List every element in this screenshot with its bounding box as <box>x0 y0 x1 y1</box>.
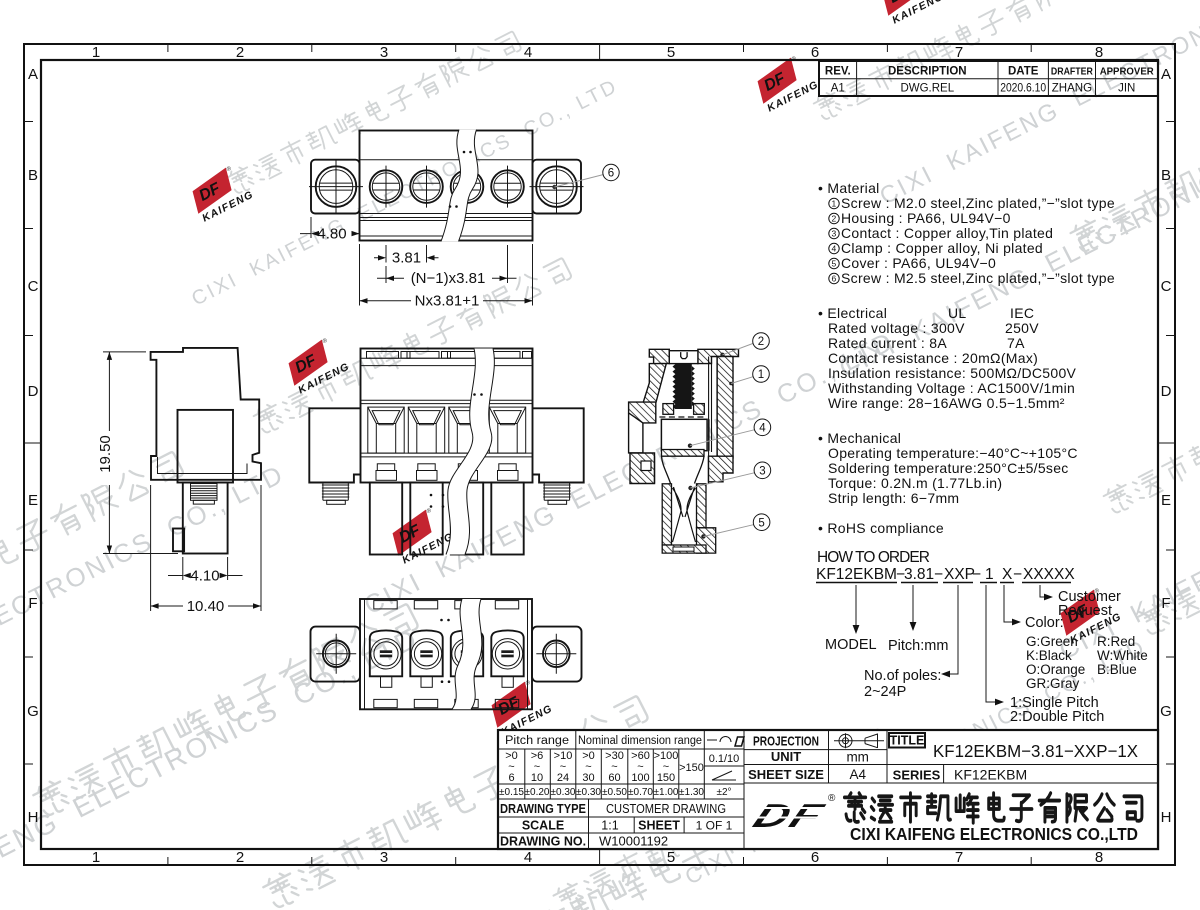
svg-text:6: 6 <box>831 274 836 284</box>
svg-text:Contact resistance : 20mΩ(Max): Contact resistance : 20mΩ(Max) <box>828 350 1038 366</box>
svg-text:XXXXX: XXXXX <box>1023 566 1075 583</box>
svg-text:MODEL: MODEL <box>825 637 877 653</box>
svg-text:A4: A4 <box>849 767 866 782</box>
svg-text:±0.30: ±0.30 <box>576 787 601 798</box>
svg-text:1: 1 <box>92 44 100 61</box>
svg-text:E: E <box>1161 492 1171 509</box>
svg-text:Cover : PA66, UL94V−0: Cover : PA66, UL94V−0 <box>841 255 996 271</box>
svg-text:F: F <box>28 595 37 612</box>
svg-text:DRAWING TYPE: DRAWING TYPE <box>500 802 586 816</box>
svg-text:UNIT: UNIT <box>771 749 801 764</box>
svg-text:3: 3 <box>380 44 388 61</box>
svg-text:>150: >150 <box>679 762 704 774</box>
svg-text:D: D <box>28 383 39 400</box>
svg-text:(N−1)x3.81: (N−1)x3.81 <box>411 270 486 287</box>
svg-text:±1.30: ±1.30 <box>679 787 704 798</box>
svg-text:19.50: 19.50 <box>97 435 114 473</box>
svg-text:2: 2 <box>758 336 764 348</box>
svg-text:−: − <box>972 566 981 583</box>
svg-text:B: B <box>1161 167 1171 184</box>
svg-text:X: X <box>1002 566 1013 583</box>
svg-text:KF12EKBM: KF12EKBM <box>816 566 897 583</box>
svg-text:150: 150 <box>657 772 675 784</box>
svg-text:• Material: • Material <box>818 180 880 196</box>
svg-text:1: 1 <box>985 566 994 583</box>
svg-text:10: 10 <box>531 772 543 784</box>
svg-text:DWG.REL: DWG.REL <box>900 83 954 95</box>
svg-text:3.81: 3.81 <box>904 566 934 583</box>
svg-text:R:Red: R:Red <box>1097 634 1135 649</box>
svg-text:2: 2 <box>236 44 244 61</box>
svg-text:1: 1 <box>92 849 100 866</box>
svg-text:6: 6 <box>811 849 819 866</box>
svg-text:®: ® <box>828 793 836 804</box>
svg-text:4: 4 <box>759 423 766 435</box>
svg-text:1 OF 1: 1 OF 1 <box>696 819 733 833</box>
svg-text:Wire range: 28−16AWG 0.5−1.5m: Wire range: 28−16AWG 0.5−1.5mm² <box>828 395 1065 411</box>
svg-text:D: D <box>1161 383 1172 400</box>
svg-text:±0.15: ±0.15 <box>499 787 524 798</box>
svg-text:4: 4 <box>524 44 532 61</box>
svg-text:SCALE: SCALE <box>522 819 564 833</box>
svg-text:C: C <box>28 278 39 295</box>
svg-text:B:Blue: B:Blue <box>1097 662 1137 677</box>
svg-text:SERIES: SERIES <box>893 768 941 783</box>
svg-text:3: 3 <box>380 849 388 866</box>
svg-text:2:Double Pitch: 2:Double Pitch <box>1010 709 1104 725</box>
svg-text:8: 8 <box>1095 44 1103 61</box>
svg-text:60: 60 <box>608 772 620 784</box>
svg-text:±2°: ±2° <box>716 787 731 798</box>
svg-text:F: F <box>1161 595 1170 612</box>
svg-text:1: 1 <box>758 369 764 381</box>
svg-text:4.10: 4.10 <box>190 567 219 584</box>
svg-text:O:Orange: O:Orange <box>1026 662 1085 677</box>
svg-text:3: 3 <box>831 229 836 239</box>
svg-text:Rated current : 8A: Rated current : 8A <box>828 335 947 351</box>
svg-text:W10001192: W10001192 <box>599 834 668 849</box>
svg-text:SHEET: SHEET <box>638 819 680 833</box>
svg-text:DESCRIPTION: DESCRIPTION <box>888 66 967 78</box>
svg-text:W:White: W:White <box>1097 648 1148 663</box>
svg-text:G: G <box>27 703 39 720</box>
svg-text:±0.20: ±0.20 <box>525 787 550 798</box>
svg-text:1: 1 <box>831 199 836 209</box>
svg-text:5: 5 <box>667 44 675 61</box>
svg-text:7A: 7A <box>1007 335 1025 351</box>
svg-text:1:1: 1:1 <box>601 819 618 833</box>
svg-text:0.1/10: 0.1/10 <box>709 753 740 765</box>
svg-text:±0.50: ±0.50 <box>602 787 627 798</box>
svg-text:H: H <box>1161 809 1172 826</box>
svg-text:Pitch:mm: Pitch:mm <box>888 638 948 654</box>
svg-text:PROJECTION: PROJECTION <box>753 735 819 749</box>
svg-text:10.40: 10.40 <box>187 598 225 615</box>
svg-text:C: C <box>1161 278 1172 295</box>
svg-text:DATE: DATE <box>1008 66 1039 78</box>
svg-text:ZHANG: ZHANG <box>1052 83 1092 95</box>
svg-text:2020.6.10: 2020.6.10 <box>1000 83 1046 95</box>
svg-text:A: A <box>1161 66 1171 83</box>
svg-text:±0.30: ±0.30 <box>551 787 576 798</box>
svg-text:KF12EKBM: KF12EKBM <box>954 767 1027 783</box>
svg-text:• Mechanical: • Mechanical <box>818 430 901 446</box>
svg-text:Housing : PA66, UL94V−0: Housing : PA66, UL94V−0 <box>841 210 1011 226</box>
svg-text:mm: mm <box>846 750 869 765</box>
svg-text:24: 24 <box>557 772 569 784</box>
svg-text:8: 8 <box>1095 849 1103 866</box>
svg-text:Rated voltage : 300V: Rated voltage : 300V <box>828 320 965 336</box>
svg-text:HOW TO ORDER: HOW TO ORDER <box>817 549 930 566</box>
svg-text:Withstanding Voltage : AC1500V: Withstanding Voltage : AC1500V/1min <box>828 380 1075 396</box>
svg-text:B: B <box>28 167 38 184</box>
svg-text:6: 6 <box>608 168 614 180</box>
svg-text:Torque: 0.2N.m (1.77Lb.in): Torque: 0.2N.m (1.77Lb.in) <box>828 475 1002 491</box>
svg-text:4.80: 4.80 <box>317 226 346 243</box>
svg-text:IEC: IEC <box>1010 305 1034 321</box>
svg-text:3.81: 3.81 <box>392 250 421 267</box>
svg-text:2: 2 <box>236 849 244 866</box>
svg-text:30: 30 <box>582 772 594 784</box>
svg-text:7: 7 <box>955 44 963 61</box>
svg-text:Nx3.81+1: Nx3.81+1 <box>415 293 480 310</box>
svg-text:Operating temperature:−40°C~+1: Operating temperature:−40°C~+105°C <box>828 445 1078 461</box>
svg-text:100: 100 <box>631 772 649 784</box>
svg-text:UL: UL <box>948 305 967 321</box>
svg-text:E: E <box>28 492 38 509</box>
svg-text:DRAWING NO.: DRAWING NO. <box>500 835 586 849</box>
svg-text:SHEET SIZE: SHEET SIZE <box>748 767 824 782</box>
svg-text:±1.00: ±1.00 <box>654 787 679 798</box>
svg-text:APPROVER: APPROVER <box>1100 66 1154 78</box>
svg-text:2: 2 <box>831 214 836 224</box>
svg-text:REV.: REV. <box>825 66 851 78</box>
svg-text:6: 6 <box>811 44 819 61</box>
svg-text:250V: 250V <box>1005 320 1039 336</box>
svg-text:±0.70: ±0.70 <box>628 787 653 798</box>
svg-text:Strip length: 6−7mm: Strip length: 6−7mm <box>828 490 959 506</box>
svg-text:A: A <box>28 66 38 83</box>
svg-text:Pitch range: Pitch range <box>505 735 569 747</box>
svg-text:G:Green: G:Green <box>1026 634 1078 649</box>
svg-text:XXP: XXP <box>944 566 975 583</box>
svg-text:5: 5 <box>831 259 836 269</box>
svg-text:4: 4 <box>524 849 532 866</box>
svg-text:H: H <box>28 809 39 826</box>
svg-text:CIXI KAIFENG ELECTRONICS CO.,L: CIXI KAIFENG ELECTRONICS CO.,LTD <box>850 824 1138 844</box>
svg-text:No.of poles:: No.of poles: <box>864 668 941 684</box>
svg-text:−: − <box>934 566 943 583</box>
svg-text:GR:Gray: GR:Gray <box>1026 676 1080 691</box>
svg-text:4: 4 <box>831 244 836 254</box>
svg-text:Request: Request <box>1058 603 1112 619</box>
svg-text:Screw : M2.0 steel,Zinc plated: Screw : M2.0 steel,Zinc plated,”−”slot t… <box>841 195 1115 211</box>
svg-text:Nominal dimension range: Nominal dimension range <box>578 735 702 747</box>
svg-text:3: 3 <box>759 466 765 478</box>
svg-text:6: 6 <box>508 772 514 784</box>
svg-text:• Electrical: • Electrical <box>818 305 887 321</box>
svg-text:Soldering temperature:250°C±5/: Soldering temperature:250°C±5/5sec <box>828 460 1069 476</box>
svg-text:CUSTOMER DRAWING: CUSTOMER DRAWING <box>606 802 726 816</box>
svg-text:K:Black: K:Black <box>1026 648 1072 663</box>
svg-text:Screw : M2.5 steel,Zinc plated: Screw : M2.5 steel,Zinc plated,”−”slot t… <box>841 270 1115 286</box>
svg-text:JIN: JIN <box>1118 83 1135 95</box>
svg-text:G: G <box>1160 703 1172 720</box>
svg-text:DRAFTER: DRAFTER <box>1051 66 1093 78</box>
svg-text:KF12EKBM−3.81−XXP−1X: KF12EKBM−3.81−XXP−1X <box>933 741 1138 761</box>
svg-text:5: 5 <box>667 849 675 866</box>
svg-text:A1: A1 <box>831 83 845 95</box>
svg-text:2~24P: 2~24P <box>864 684 906 700</box>
svg-text:Contact : Copper alloy,Tin pla: Contact : Copper alloy,Tin plated <box>841 225 1053 241</box>
svg-text:• RoHS compliance: • RoHS compliance <box>818 520 944 536</box>
svg-text:TITLE: TITLE <box>890 734 925 748</box>
svg-text:7: 7 <box>955 849 963 866</box>
svg-text:Clamp : Copper alloy, Ni plate: Clamp : Copper alloy, Ni plated <box>841 240 1043 256</box>
svg-text:5: 5 <box>758 517 764 529</box>
svg-text:Insulation resistance: 500MΩ/D: Insulation resistance: 500MΩ/DC500V <box>828 365 1077 381</box>
svg-text:−: − <box>1013 566 1022 583</box>
